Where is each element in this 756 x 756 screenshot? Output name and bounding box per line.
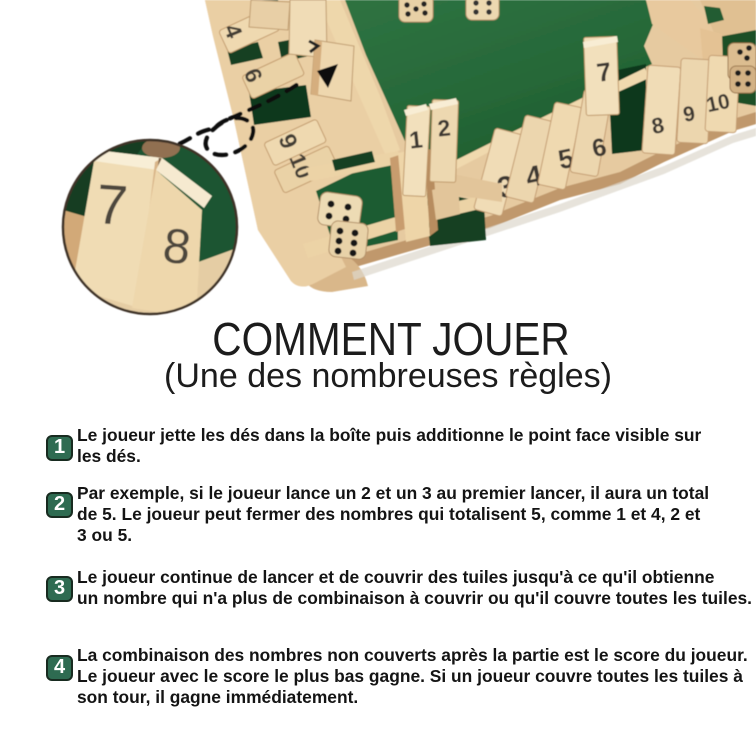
svg-text:1: 1 xyxy=(408,126,424,154)
svg-text:7: 7 xyxy=(94,172,129,237)
svg-text:10: 10 xyxy=(704,90,732,117)
svg-text:2: 2 xyxy=(436,114,451,141)
